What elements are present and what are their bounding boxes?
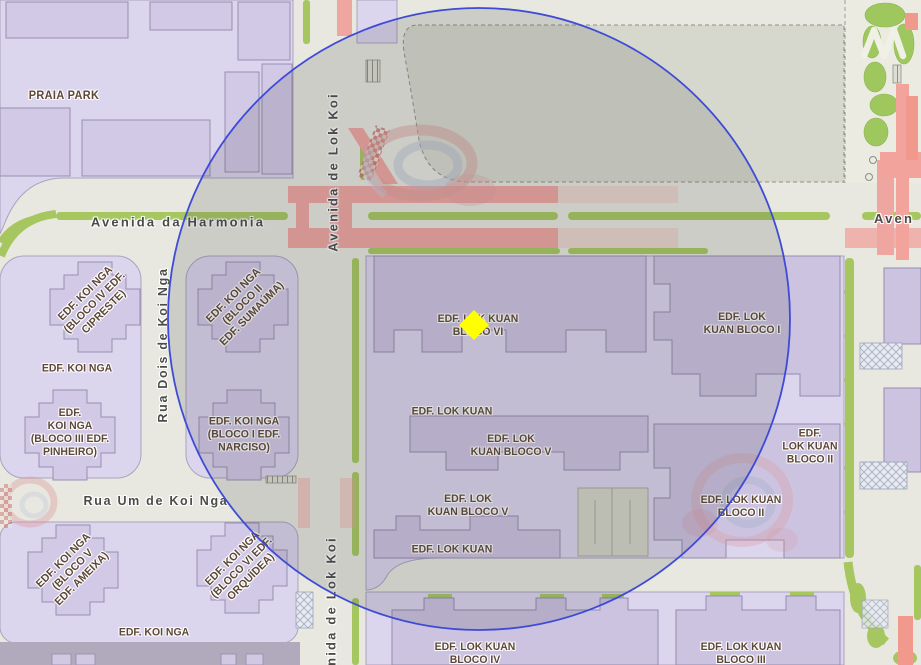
place-label-praia-park: PRAIA PARK xyxy=(29,90,100,104)
place-label-edf-lok-kuan-mid: EDF. LOK KUAN xyxy=(412,406,493,419)
place-label-edf-lok-kuan-bloco-v-lower: EDF. LOK KUAN BLOCO V xyxy=(428,493,509,519)
place-label-edf-koi-nga-orquidea: EDF. KOI NGA (BLOCO VI EDF. ORQUÍDEA) xyxy=(200,526,285,611)
place-label-edf-koi-nga-ameixa: EDF. KOI NGA (BLOCO V EDF. AMEIXA) xyxy=(34,531,112,609)
place-label-edf-lok-kuan-bloco-ii-east: EDF. LOK KUAN BLOCO II xyxy=(782,428,837,467)
place-label-edf-lok-kuan-bloco-i: EDF. LOK KUAN BLOCO I xyxy=(704,311,781,337)
place-label-edf-koi-nga-pinheiro: EDF. KOI NGA (BLOCO III EDF. PINHEIRO) xyxy=(31,407,109,459)
place-label-edf-lok-kuan-lower: EDF. LOK KUAN xyxy=(412,544,493,557)
place-label-edf-lok-kuan-bloco-iii: EDF. LOK KUAN BLOCO III xyxy=(701,641,782,665)
street-label-rua-um-de-koi-nga: Rua Um de Koi Nga xyxy=(84,494,229,508)
street-label-avenida-de-lok-koi-south: Avenida de Lok Koi xyxy=(324,536,339,665)
place-label-edf-lok-kuan-bloco-ii-south: EDF. LOK KUAN BLOCO II xyxy=(701,494,782,520)
place-label-edf-lok-kuan-bloco-v-upper: EDF. LOK KUAN BLOCO V xyxy=(471,433,552,459)
place-label-edf-koi-nga-cipreste: EDF. KOI NGA (BLOCO IV EDF. CIPRESTE) xyxy=(53,261,138,346)
place-label-edf-koi-nga-south: EDF. KOI NGA xyxy=(119,627,189,640)
street-label-avenida-de-lok-koi-north: Avenida de Lok Koi xyxy=(326,92,341,252)
place-label-edf-koi-nga: EDF. KOI NGA xyxy=(42,363,112,376)
place-label-edf-koi-nga-narciso: EDF. KOI NGA (BLOCO I EDF. NARCISO) xyxy=(208,416,281,455)
map-labels-layer: Avenida da Harmonia Avenida de Lok Koi R… xyxy=(0,0,921,665)
place-label-edf-lok-kuan-bloco-vi: EDF. LOK KUAN BLOCO VI xyxy=(438,313,519,339)
street-label-avenida-partial: Aven xyxy=(874,211,914,226)
street-label-rua-dois-de-koi-nga: Rua Dois de Koi Nga xyxy=(156,267,170,422)
street-label-avenida-da-harmonia: Avenida da Harmonia xyxy=(91,215,265,230)
place-label-edf-koi-nga-sumauma: EDF. KOI NGA (BLOCO II EDF. SUMAÚMA) xyxy=(199,261,287,349)
place-label-edf-lok-kuan-bloco-iv: EDF. LOK KUAN BLOCO IV xyxy=(435,641,516,665)
map-canvas[interactable]: Avenida da Harmonia Avenida de Lok Koi R… xyxy=(0,0,921,665)
